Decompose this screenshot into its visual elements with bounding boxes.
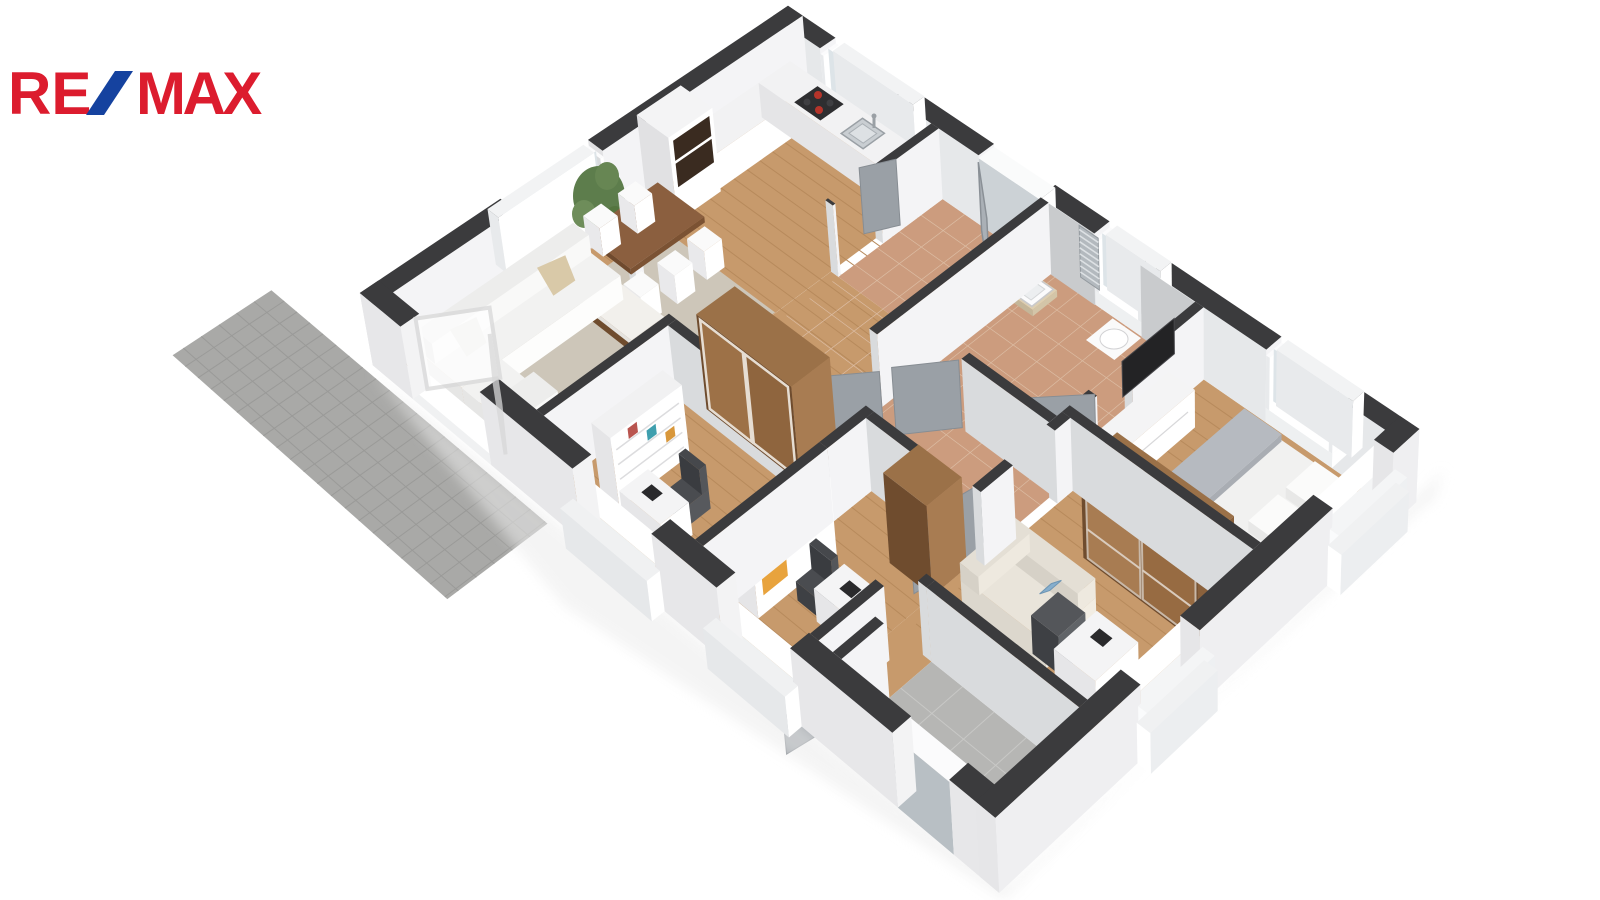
svg-text:MAX: MAX — [136, 60, 262, 127]
svg-text:RE: RE — [8, 60, 91, 127]
